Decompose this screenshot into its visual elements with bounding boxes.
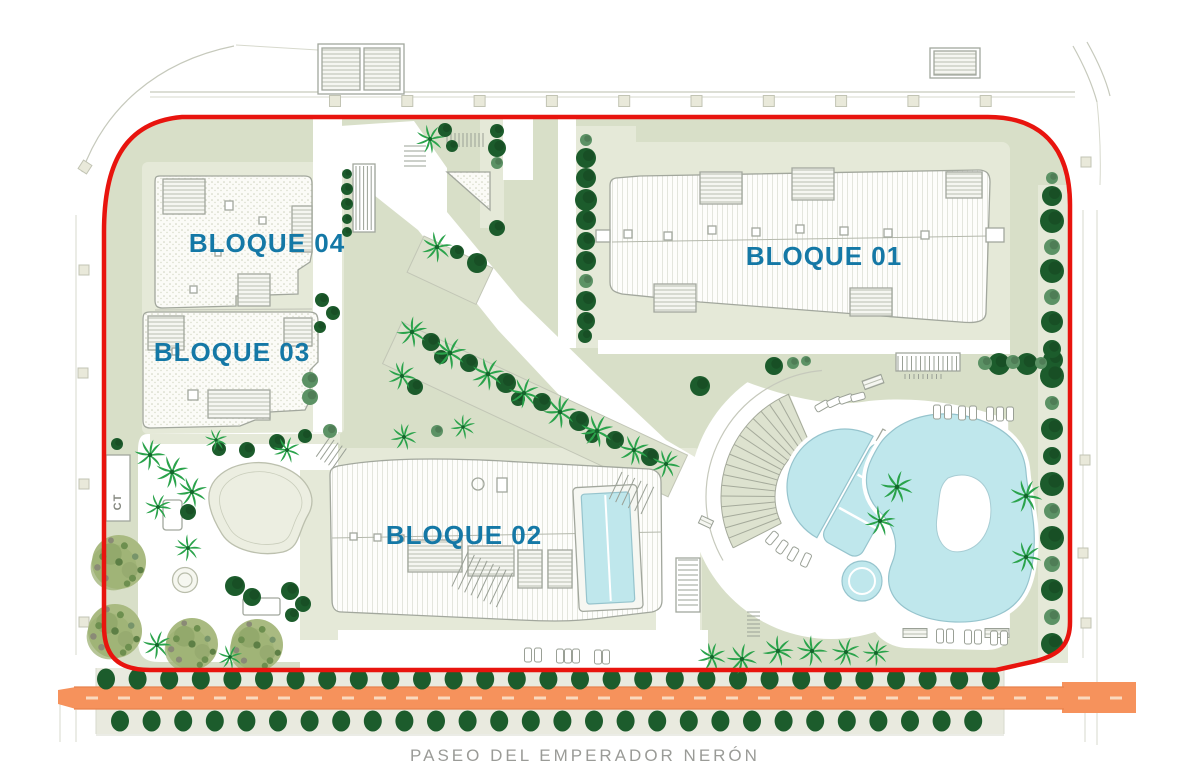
street-tree-icon [775, 711, 793, 732]
label-bloque-04: BLOQUE 04 [189, 228, 345, 258]
roof-terrace [518, 550, 542, 588]
rooftop-pool [573, 484, 643, 611]
stairs-icon [747, 612, 760, 636]
tree-icon [243, 588, 261, 606]
tree-icon [578, 329, 592, 343]
tree-icon [533, 393, 551, 411]
entrance-stair-structures [318, 44, 980, 94]
tree-icon [490, 124, 504, 138]
tree-icon [489, 220, 505, 236]
kids-pool [842, 561, 882, 601]
tree-icon [690, 376, 710, 396]
tree-icon [422, 333, 440, 351]
lounger-icon [965, 630, 972, 644]
street-tree-icon [269, 711, 287, 732]
tree-icon [801, 356, 811, 366]
tree-icon [450, 245, 464, 259]
tree-icon [295, 596, 311, 612]
lounger-icon [1007, 407, 1014, 421]
roof-detail [884, 229, 892, 237]
street-tree-icon [901, 711, 919, 732]
lounger-icon [934, 405, 941, 419]
tree-icon [446, 140, 458, 152]
lounger-icon [595, 650, 602, 664]
tree-icon [576, 168, 596, 188]
street-tree-icon [553, 711, 571, 732]
stairs [654, 284, 696, 312]
tree-icon [342, 169, 352, 179]
sidewalk-marker [1081, 157, 1091, 167]
sidewalk-marker [78, 160, 92, 174]
roof-detail [840, 227, 848, 235]
lounger-icon [959, 406, 966, 420]
tree-icon [577, 312, 595, 330]
tree-icon [302, 389, 318, 405]
street-tree-icon [174, 711, 192, 732]
tree-icon [787, 357, 799, 369]
street-tree-icon [585, 711, 603, 732]
street-name-label: PASEO DEL EMPERADOR NERÓN [410, 746, 760, 765]
tree-icon [314, 321, 326, 333]
street-tree-icon [206, 711, 224, 732]
tree-icon [302, 372, 318, 388]
sidewalk-marker [79, 265, 89, 275]
street-tree-icon [964, 711, 982, 732]
tree-icon [491, 157, 503, 169]
tree-icon [111, 438, 123, 450]
tree-icon [978, 356, 992, 370]
street-paseo [58, 668, 1136, 735]
lounger-icon [987, 407, 994, 421]
street-tree-icon [838, 711, 856, 732]
lounger-icon [1001, 631, 1008, 645]
label-bloque-01: BLOQUE 01 [746, 241, 902, 271]
tree-icon [579, 274, 593, 288]
bench-structure [163, 500, 182, 530]
tree-icon [285, 608, 299, 622]
tree-icon [180, 504, 196, 520]
street-tree-icon [395, 711, 413, 732]
tree-icon [1046, 172, 1058, 184]
tree-icon [1042, 186, 1062, 206]
lounger-icon [991, 631, 998, 645]
stairs [700, 172, 742, 204]
stairs [208, 390, 270, 418]
tree-icon [1043, 447, 1061, 465]
roof-detail [664, 232, 672, 240]
tree-icon [1041, 418, 1063, 440]
lounger-icon [565, 649, 572, 663]
lounger-icon [947, 629, 954, 643]
tree-icon [281, 582, 299, 600]
street-tree-icon [332, 711, 350, 732]
sidewalk-marker [1081, 618, 1091, 628]
street-tree-icon [617, 711, 635, 732]
tree-icon [407, 379, 423, 395]
sidewalk-marker [330, 96, 341, 107]
sidewalk-marker [619, 96, 630, 107]
label-bloque-02: BLOQUE 02 [386, 520, 542, 550]
tree-icon [431, 425, 443, 437]
sidewalk-marker [1080, 455, 1090, 465]
street-tree-icon [459, 711, 477, 732]
sidewalk-marker [763, 96, 774, 107]
tree-icon [1040, 526, 1064, 550]
lounger-icon [970, 406, 977, 420]
lounger-icon [997, 407, 1004, 421]
tree-icon [315, 293, 329, 307]
sidewalk-marker [79, 479, 89, 489]
transformer-label: CT [112, 494, 124, 511]
lounger-icon [975, 630, 982, 644]
tree-icon [1006, 355, 1020, 369]
tree-icon [460, 354, 478, 372]
sidewalk-marker [78, 368, 88, 378]
building-bloque-03 [143, 309, 318, 428]
tree-icon [1041, 311, 1063, 333]
roof-detail [921, 231, 929, 239]
stairs [163, 179, 205, 214]
stairs [850, 288, 892, 316]
sidewalk-marker [836, 96, 847, 107]
lounger-icon [525, 648, 532, 662]
tree-icon [1044, 239, 1060, 255]
tree-icon [1041, 579, 1063, 601]
tree-icon [1044, 609, 1060, 625]
tree-icon [576, 210, 596, 230]
lounger-icon [535, 648, 542, 662]
stairs [946, 172, 982, 198]
lounger-icon [945, 405, 952, 419]
tree-icon [1044, 556, 1060, 572]
street-tree-icon [933, 711, 951, 732]
tree-icon [438, 123, 452, 137]
roof-detail [796, 225, 804, 233]
tree-icon [765, 357, 783, 375]
tree-icon [1040, 209, 1064, 233]
tree-icon [467, 253, 487, 273]
tree-icon [342, 214, 352, 224]
sidewalk-marker [79, 617, 89, 627]
sidewalk-marker [980, 96, 991, 107]
roof-detail [708, 226, 716, 234]
tree-icon [488, 139, 506, 157]
lounger-icon [573, 649, 580, 663]
sidewalk-marker [402, 96, 413, 107]
street-tree-icon [111, 711, 129, 732]
sidewalk-marker [691, 96, 702, 107]
lounger-icon [937, 629, 944, 643]
tree-icon [239, 442, 255, 458]
street-tree-icon [97, 669, 115, 690]
street-tree-icon [869, 711, 887, 732]
street-tree-icon [680, 711, 698, 732]
tree-icon [326, 306, 340, 320]
tree-icon [1044, 503, 1060, 519]
street-tree-icon [237, 711, 255, 732]
tree-icon [341, 183, 353, 195]
tree-icon [1040, 259, 1064, 283]
roof-detail [752, 228, 760, 236]
tree-icon [575, 189, 597, 211]
tree-icon [576, 251, 596, 271]
crossing-marks [903, 629, 927, 638]
street-tree-icon [743, 711, 761, 732]
stairs [238, 274, 270, 306]
tree-icon [1043, 340, 1061, 358]
stairs [792, 168, 834, 200]
tree-icon [1044, 289, 1060, 305]
site-plan-drawing: CT [0, 0, 1200, 783]
roof-terrace [548, 550, 572, 588]
lounger-icon [603, 650, 610, 664]
tree-icon [225, 576, 245, 596]
street-tree-icon [806, 711, 824, 732]
lounger-icon [557, 649, 564, 663]
road-surface [58, 682, 1136, 713]
tree-icon [1035, 357, 1047, 369]
tree-icon [641, 448, 659, 466]
tree-icon [577, 232, 595, 250]
tree-icon [323, 424, 337, 438]
tree-icon [269, 434, 285, 450]
tree-icon [1045, 396, 1059, 410]
street-tree-icon [711, 711, 729, 732]
street-tree-icon [490, 711, 508, 732]
street-tree-icon [364, 711, 382, 732]
street-tree-icon [427, 711, 445, 732]
tree-icon [576, 148, 596, 168]
roof-detail [624, 230, 632, 238]
lagoon-pool [866, 414, 1034, 622]
sidewalk-marker [546, 96, 557, 107]
sidewalk-marker [474, 96, 485, 107]
tree-icon [341, 198, 353, 210]
street-tree-icon [648, 711, 666, 732]
tree-icon [298, 429, 312, 443]
tree-icon [576, 291, 596, 311]
street-tree-icon [143, 711, 161, 732]
street-tree-icon [522, 711, 540, 732]
label-bloque-03: BLOQUE 03 [154, 337, 310, 367]
tree-icon [580, 134, 592, 146]
tree-icon [1040, 472, 1064, 496]
sidewalk-marker [908, 96, 919, 107]
sidewalk-marker [1078, 548, 1088, 558]
spiral-play-element [173, 568, 198, 593]
street-tree-icon [301, 711, 319, 732]
site-plan-canvas: CT [0, 0, 1200, 783]
